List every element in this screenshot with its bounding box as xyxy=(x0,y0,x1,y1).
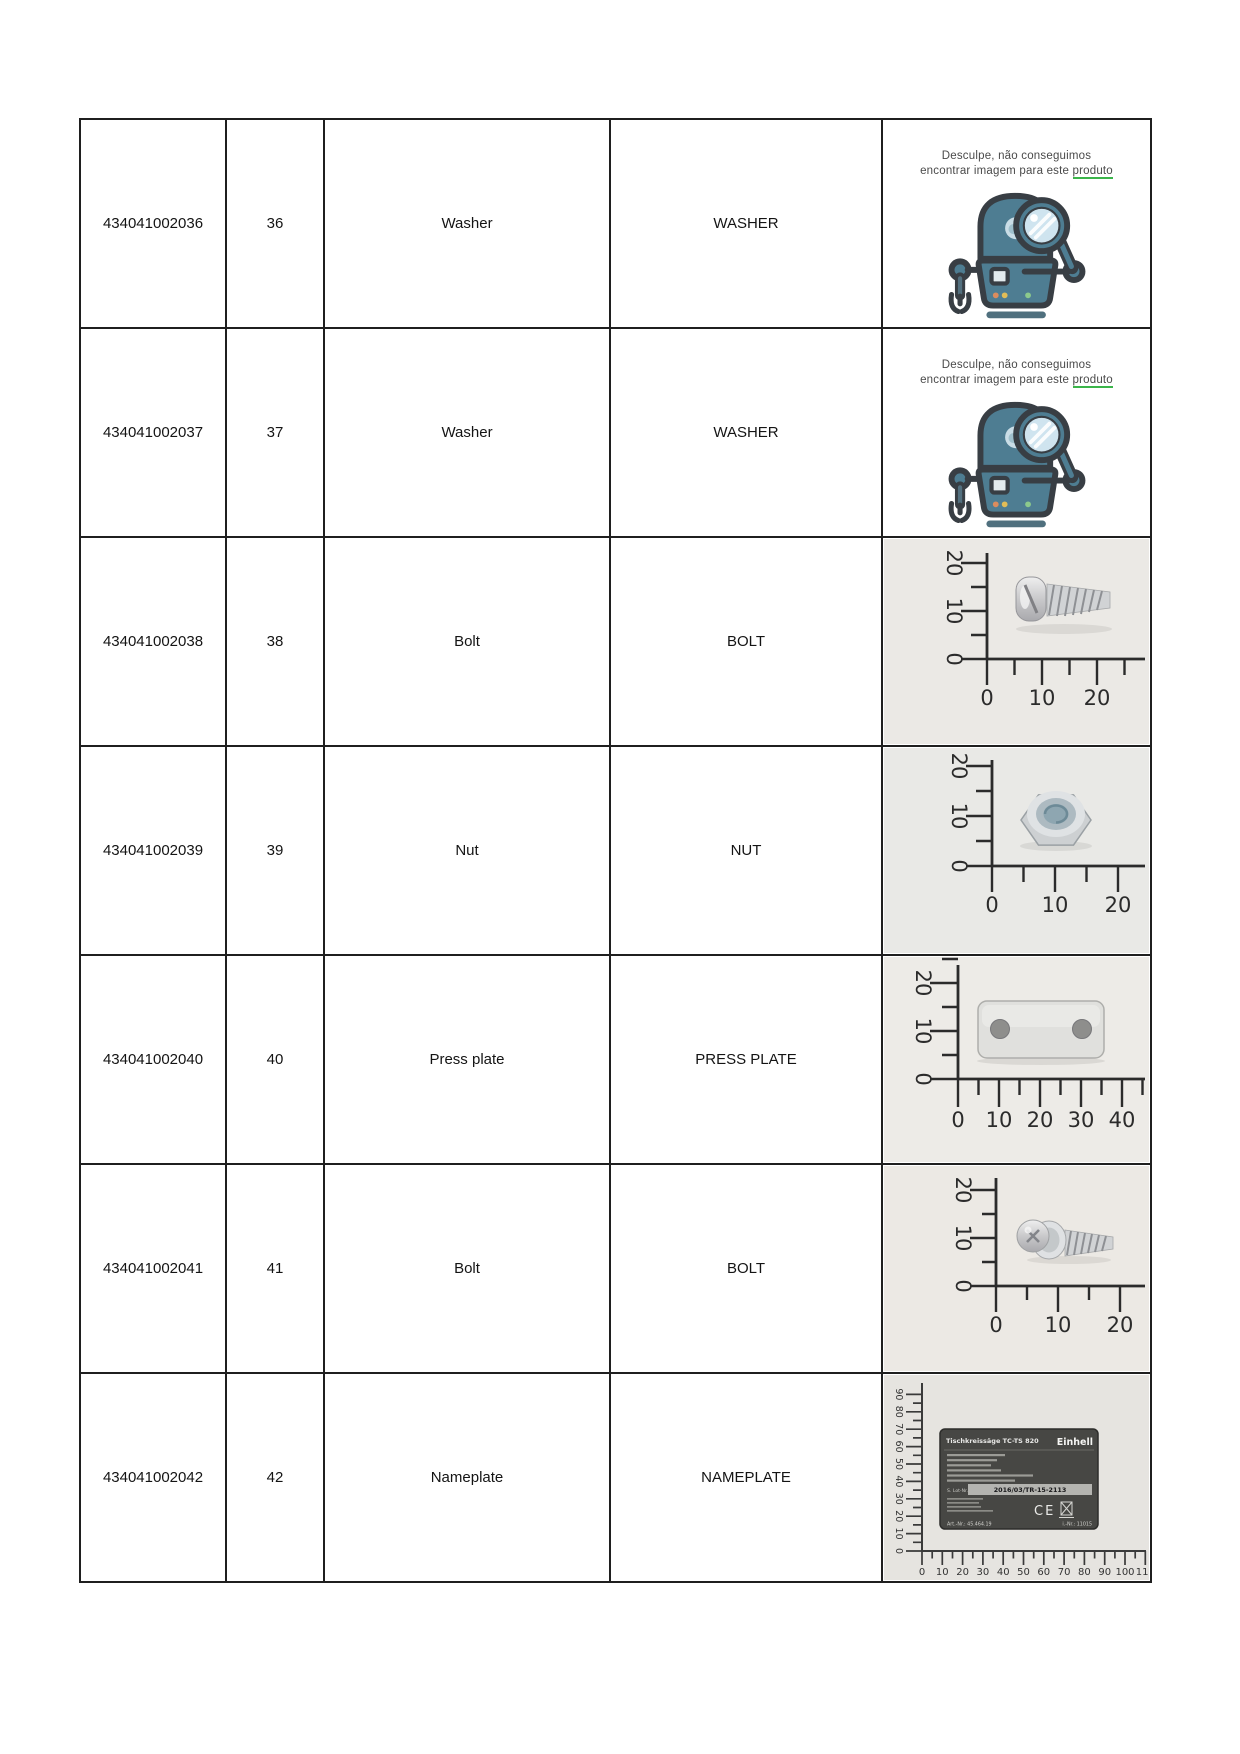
no-image-line2: encontrar imagem para este xyxy=(920,374,1072,386)
nameplate-title: Tischkreissäge TC-TS 820 xyxy=(946,1437,1039,1445)
ruler-x-label: 20 xyxy=(956,1567,969,1578)
part-number-cell: 434041002039 xyxy=(80,746,226,955)
nut-photo: 20 10 0 0 10 20 xyxy=(884,748,1149,953)
position-cell: 39 xyxy=(226,746,324,955)
ruler-y-label: 0 xyxy=(942,652,966,665)
ruler-x-label: 20 xyxy=(1084,686,1111,710)
part-number-cell: 434041002038 xyxy=(80,537,226,746)
bolt-photo: 20 10 0 0 10 20 xyxy=(884,539,1149,744)
description-upper-cell: BOLT xyxy=(610,1164,882,1373)
description-cell: Bolt xyxy=(324,1164,610,1373)
nameplate-i-nr: i.-Nr.: 11015 xyxy=(1062,1522,1092,1528)
table-row: 434041002041 41 Bolt BOLT 20 10 0 0 10 2… xyxy=(80,1164,1151,1373)
image-cell: 90 80 70 60 50 40 30 20 10 0 0 10 20 30 xyxy=(882,1373,1151,1582)
part-number-cell: 434041002041 xyxy=(80,1164,226,1373)
image-cell: 20 10 0 0 10 20 30 40 xyxy=(882,955,1151,1164)
position-cell: 36 xyxy=(226,119,324,328)
ruler-x-label: 10 xyxy=(986,1108,1013,1132)
ruler-y-label: 20 xyxy=(893,1510,904,1522)
description-cell: Nut xyxy=(324,746,610,955)
description-cell: Bolt xyxy=(324,537,610,746)
table-row: 434041002039 39 Nut NUT 20 10 0 0 10 20 xyxy=(80,746,1151,955)
nameplate-brand: Einhell xyxy=(1057,1437,1093,1448)
part-number-cell: 434041002036 xyxy=(80,119,226,328)
ruler-x-label: 0 xyxy=(951,1108,964,1132)
part-number-cell: 434041002042 xyxy=(80,1373,226,1582)
ruler-x-label: 10 xyxy=(1029,686,1056,710)
ce-mark: CE xyxy=(1034,1504,1055,1519)
table-row: 434041002042 42 Nameplate NAMEPLATE 90 8… xyxy=(80,1373,1151,1582)
ruler-y-label: 10 xyxy=(911,1018,935,1045)
description-cell: Press plate xyxy=(324,955,610,1164)
no-image-line1: Desculpe, não conseguimos xyxy=(942,150,1091,162)
press-plate-image xyxy=(977,1001,1105,1065)
ruler-x-label: 20 xyxy=(1027,1108,1054,1132)
table-row: 434041002040 40 Press plate PRESS PLATE … xyxy=(80,955,1151,1164)
nameplate-art-nr: Art.-Nr.: 45.464.19 xyxy=(947,1522,992,1528)
ruler-y-label: 20 xyxy=(947,753,971,780)
description-cell: Washer xyxy=(324,119,610,328)
ruler-y-label: 20 xyxy=(942,550,966,577)
no-image-message: Desculpe, não conseguimos encontrar imag… xyxy=(920,149,1113,179)
description-upper-cell: NAMEPLATE xyxy=(610,1373,882,1582)
ruler-x-label: 0 xyxy=(985,893,998,917)
ruler-y-label: 0 xyxy=(893,1548,904,1554)
ruler-y-label: 0 xyxy=(911,1072,935,1085)
image-cell: 20 10 0 0 10 20 xyxy=(882,1164,1151,1373)
description-cell: Washer xyxy=(324,328,610,537)
description-upper-cell: PRESS PLATE xyxy=(610,955,882,1164)
ruler-x-label: 0 xyxy=(980,686,993,710)
bolt-washer-photo: 20 10 0 0 10 20 xyxy=(884,1166,1149,1371)
no-image-message: Desculpe, não conseguimos encontrar imag… xyxy=(920,358,1113,388)
parts-table: 434041002036 36 Washer WASHER Desculpe, … xyxy=(79,118,1152,1583)
part-number-cell: 434041002040 xyxy=(80,955,226,1164)
ruler-x-label: 20 xyxy=(1107,1313,1134,1337)
image-cell: 20 10 0 0 10 20 xyxy=(882,537,1151,746)
ruler-y-label: 80 xyxy=(893,1406,904,1418)
robot-no-image-icon xyxy=(932,184,1102,320)
robot-no-image-icon xyxy=(932,393,1102,529)
ruler-x-label: 60 xyxy=(1037,1567,1050,1578)
ruler-y-label: 50 xyxy=(893,1458,904,1470)
ruler-x-label: 40 xyxy=(1109,1108,1136,1132)
description-upper-cell: WASHER xyxy=(610,119,882,328)
ruler-x-label: 0 xyxy=(919,1567,925,1578)
ruler-y-label: 10 xyxy=(942,598,966,625)
description-upper-cell: WASHER xyxy=(610,328,882,537)
ruler-x-label: 20 xyxy=(1105,893,1132,917)
image-cell: 20 10 0 0 10 20 xyxy=(882,746,1151,955)
ruler-y-label: 30 xyxy=(893,1493,904,1505)
ruler-y-label: 10 xyxy=(893,1528,904,1540)
underlined-word: produto xyxy=(1073,374,1113,388)
underlined-word: produto xyxy=(1073,165,1113,179)
ruler-x-label: 30 xyxy=(1068,1108,1095,1132)
press-plate-photo: 20 10 0 0 10 20 30 40 xyxy=(884,957,1149,1162)
nameplate-photo: 90 80 70 60 50 40 30 20 10 0 0 10 20 30 xyxy=(884,1375,1149,1580)
nameplate-label-image: Tischkreissäge TC-TS 820 Einhell S. Lot-… xyxy=(940,1429,1098,1529)
description-upper-cell: NUT xyxy=(610,746,882,955)
ruler-x-label: 70 xyxy=(1058,1567,1071,1578)
no-image-line2: encontrar imagem para este xyxy=(920,165,1072,177)
position-cell: 41 xyxy=(226,1164,324,1373)
ruler-y-label: 60 xyxy=(893,1441,904,1453)
image-cell: Desculpe, não conseguimos encontrar imag… xyxy=(882,119,1151,328)
ruler-x-label: 100 xyxy=(1115,1567,1134,1578)
image-cell: Desculpe, não conseguimos encontrar imag… xyxy=(882,328,1151,537)
ruler-y-label: 90 xyxy=(893,1388,904,1400)
no-image-line1: Desculpe, não conseguimos xyxy=(942,359,1091,371)
ruler-x-label: 10 xyxy=(1042,893,1069,917)
description-cell: Nameplate xyxy=(324,1373,610,1582)
position-cell: 38 xyxy=(226,537,324,746)
ruler-x-label: 50 xyxy=(1017,1567,1030,1578)
ruler-x-label: 90 xyxy=(1098,1567,1111,1578)
ruler-x-label: 40 xyxy=(997,1567,1010,1578)
ruler-y-label: 70 xyxy=(893,1423,904,1435)
no-image-placeholder: Desculpe, não conseguimos encontrar imag… xyxy=(883,336,1150,529)
ruler-y-label: 0 xyxy=(947,859,971,872)
position-cell: 37 xyxy=(226,328,324,537)
ruler-y-label: 10 xyxy=(951,1225,975,1252)
table-row: 434041002036 36 Washer WASHER Desculpe, … xyxy=(80,119,1151,328)
ruler-y-label: 10 xyxy=(947,803,971,830)
ruler-x-label: 30 xyxy=(977,1567,990,1578)
nameplate-serial: 2016/03/TR-15-2113 xyxy=(994,1486,1067,1494)
ruler-x-label: 10 xyxy=(1045,1313,1072,1337)
position-cell: 42 xyxy=(226,1373,324,1582)
ruler-x-label: 10 xyxy=(936,1567,949,1578)
ruler-x-label: 0 xyxy=(989,1313,1002,1337)
ruler-x-label: 80 xyxy=(1078,1567,1091,1578)
ruler-y-label: 20 xyxy=(911,970,935,997)
part-number-cell: 434041002037 xyxy=(80,328,226,537)
description-upper-cell: BOLT xyxy=(610,537,882,746)
no-image-placeholder: Desculpe, não conseguimos encontrar imag… xyxy=(883,127,1150,320)
position-cell: 40 xyxy=(226,955,324,1164)
ruler-y-label: 20 xyxy=(951,1177,975,1204)
catalog-page: 434041002036 36 Washer WASHER Desculpe, … xyxy=(0,0,1240,1754)
nameplate-lot-label: S. Lot-Nr. xyxy=(947,1488,968,1494)
ruler-y-label: 40 xyxy=(893,1475,904,1487)
ruler-x-label: 110 xyxy=(1136,1567,1149,1578)
table-row: 434041002037 37 Washer WASHER Desculpe, … xyxy=(80,328,1151,537)
ruler-y-label: 0 xyxy=(951,1279,975,1292)
table-row: 434041002038 38 Bolt BOLT 20 10 0 0 10 2… xyxy=(80,537,1151,746)
